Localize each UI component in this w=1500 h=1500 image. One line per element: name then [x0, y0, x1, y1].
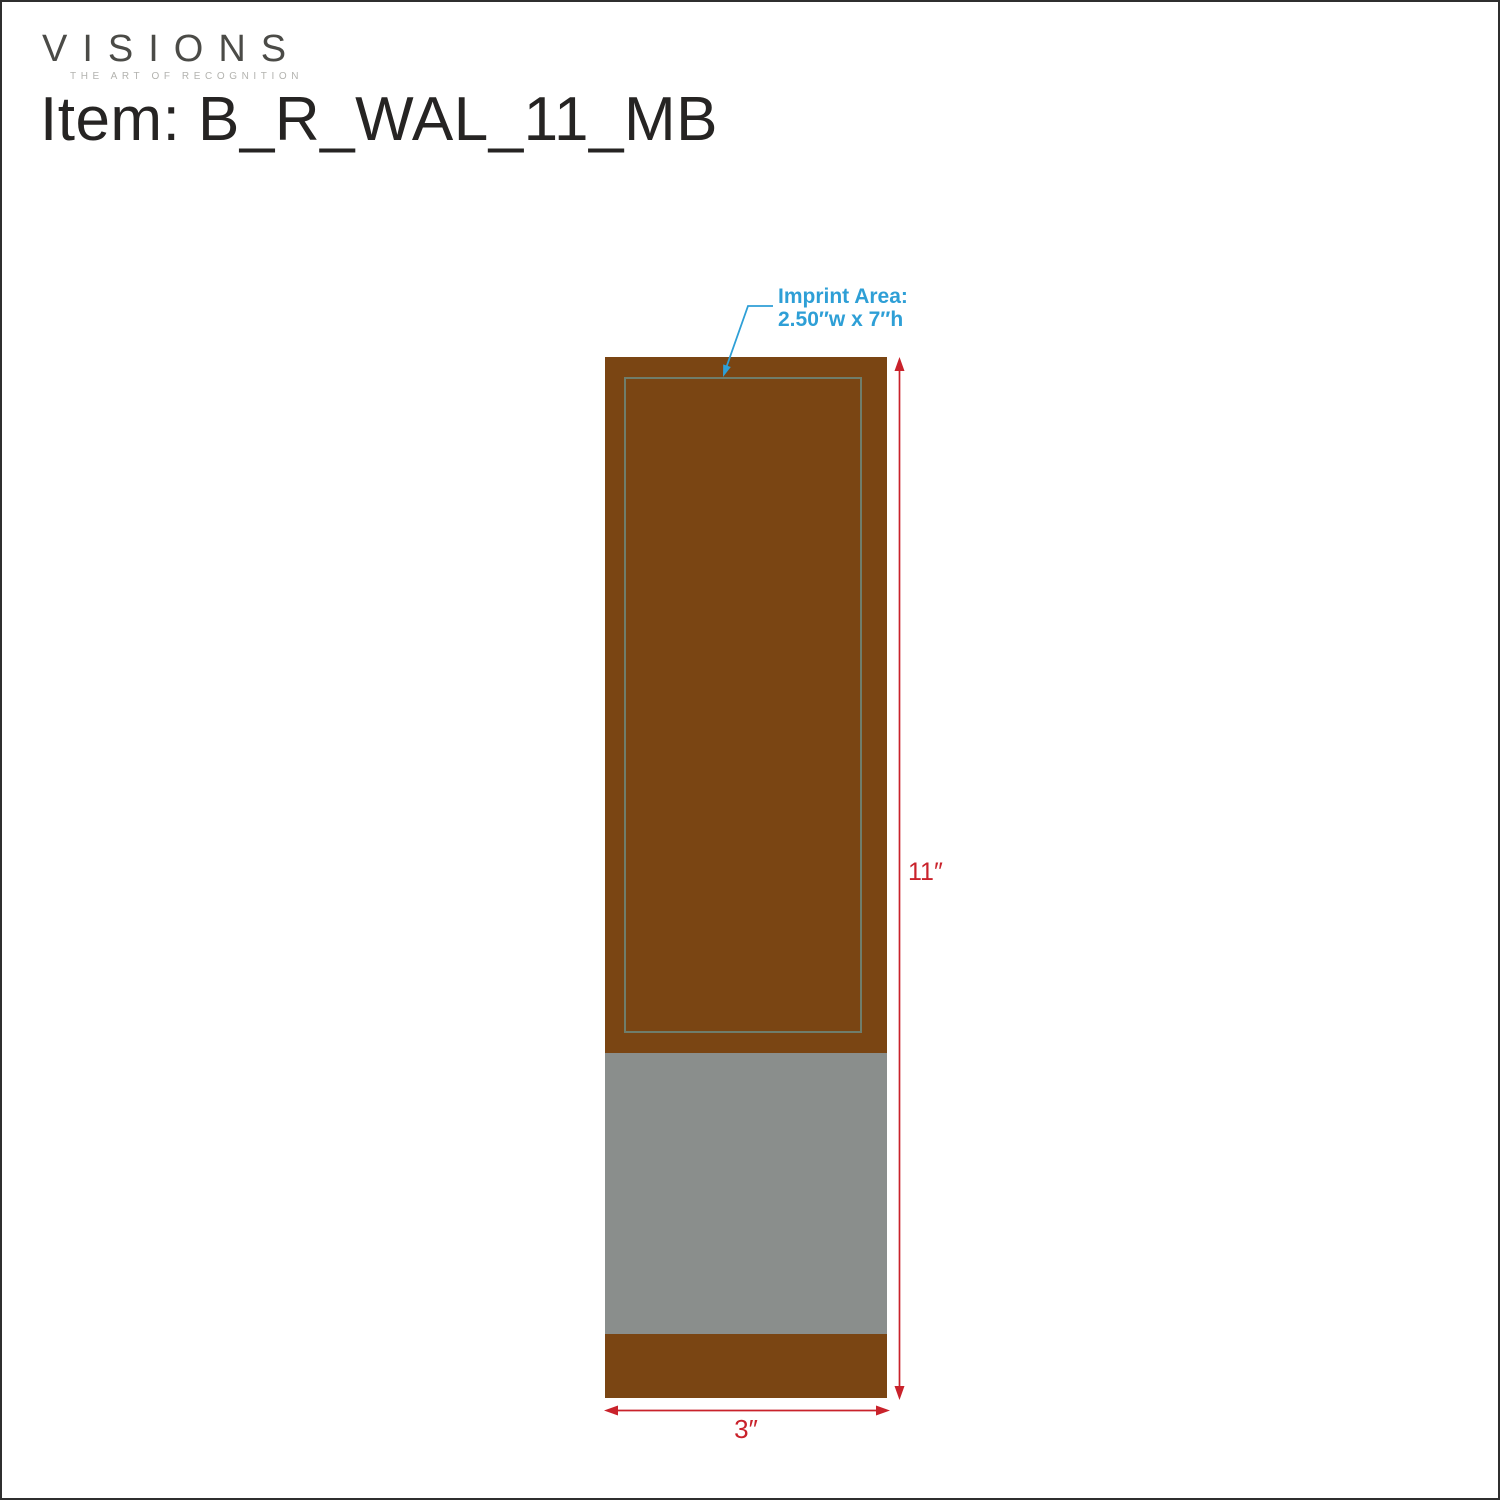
item-title: Item: B_R_WAL_11_MB [40, 84, 718, 155]
item-code: B_R_WAL_11_MB [198, 85, 718, 154]
visions-logo: VISIONS [42, 28, 301, 71]
height-arrow-down-icon [895, 1386, 905, 1400]
imprint-area-outline [624, 377, 862, 1033]
imprint-annotation: Imprint Area: 2.50″w x 7″h [778, 285, 908, 331]
width-dimension-label: 3″ [605, 1414, 887, 1445]
spec-sheet-page: VISIONS THE ART OF RECOGNITION Item: B_R… [0, 0, 1500, 1500]
item-label: Item: [40, 85, 180, 154]
plaque-drawing [605, 357, 887, 1398]
height-dimension-label: 11″ [908, 858, 943, 887]
imprint-area-label: Imprint Area: [778, 285, 908, 308]
logo-tagline: THE ART OF RECOGNITION [70, 71, 303, 82]
imprint-area-size: 2.50″w x 7″h [778, 308, 908, 331]
height-arrow-up-icon [895, 357, 905, 371]
metal-band [605, 1053, 887, 1334]
